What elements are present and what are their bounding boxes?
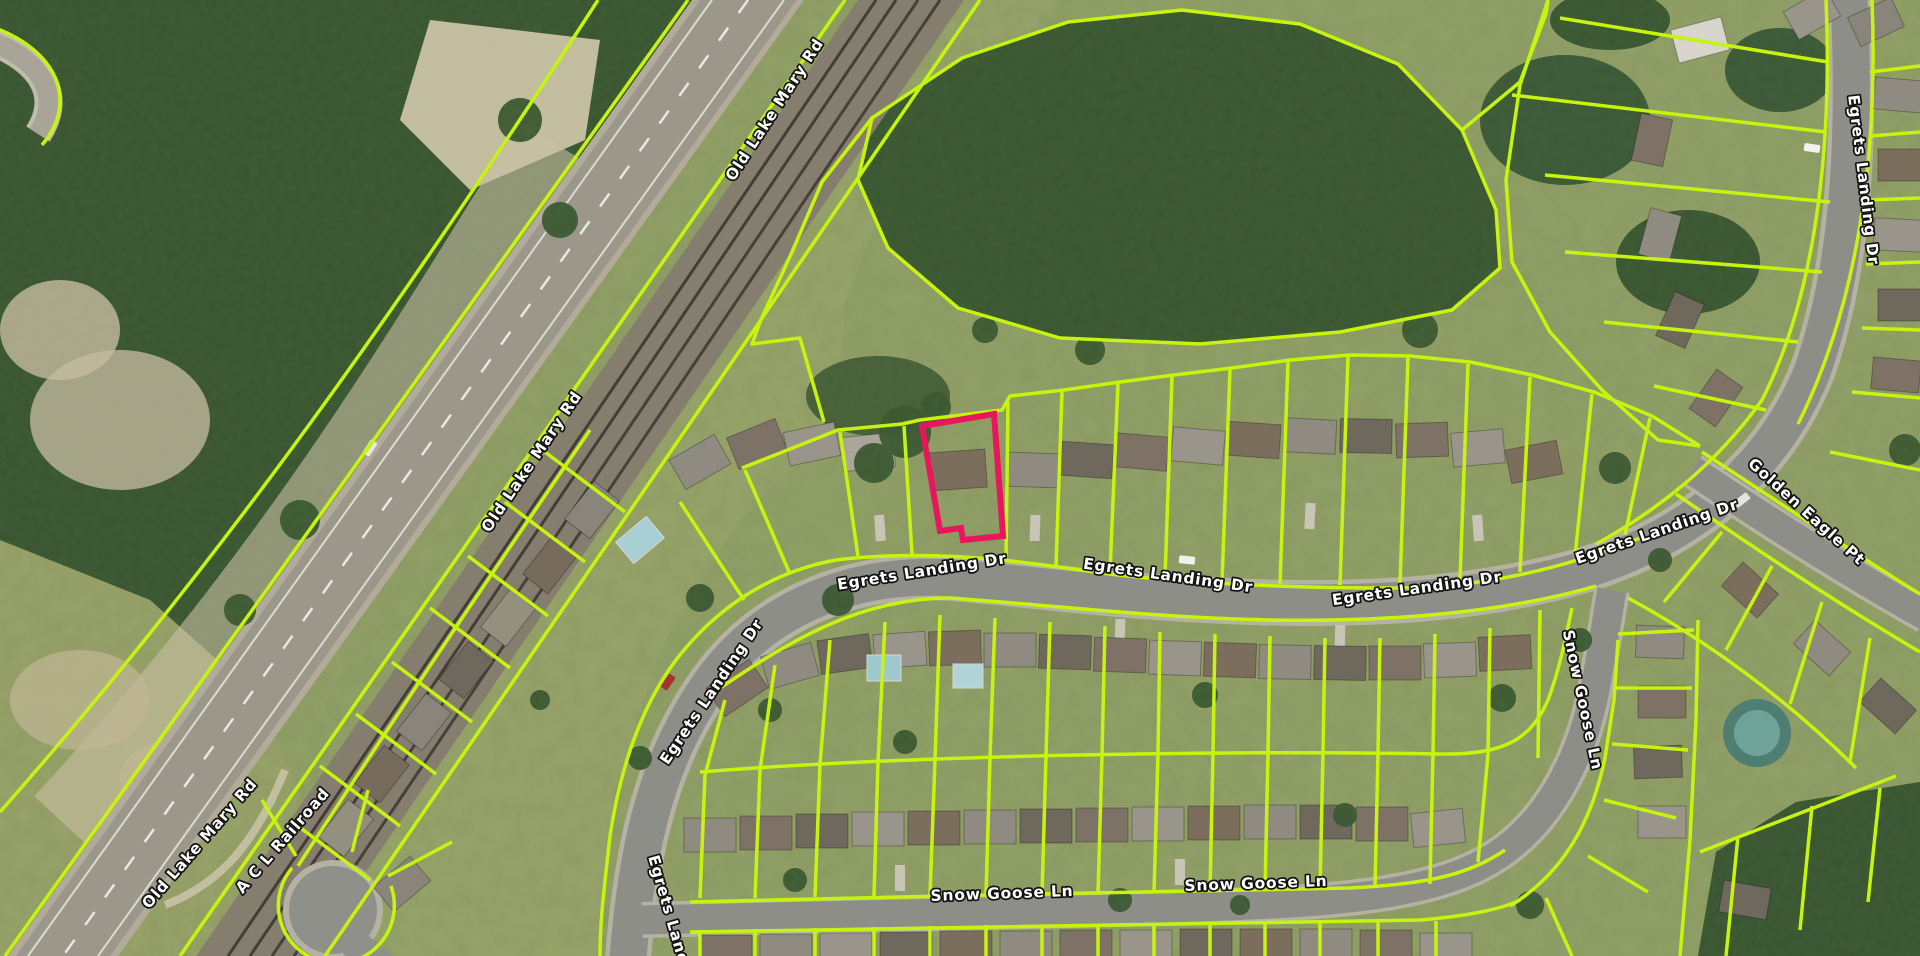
pool <box>953 664 983 688</box>
aerial-map[interactable]: Old Lake Mary RdOld Lake Mary RdOld Lake… <box>0 0 1920 956</box>
map-canvas[interactable]: Old Lake Mary RdOld Lake Mary RdOld Lake… <box>0 0 1920 956</box>
